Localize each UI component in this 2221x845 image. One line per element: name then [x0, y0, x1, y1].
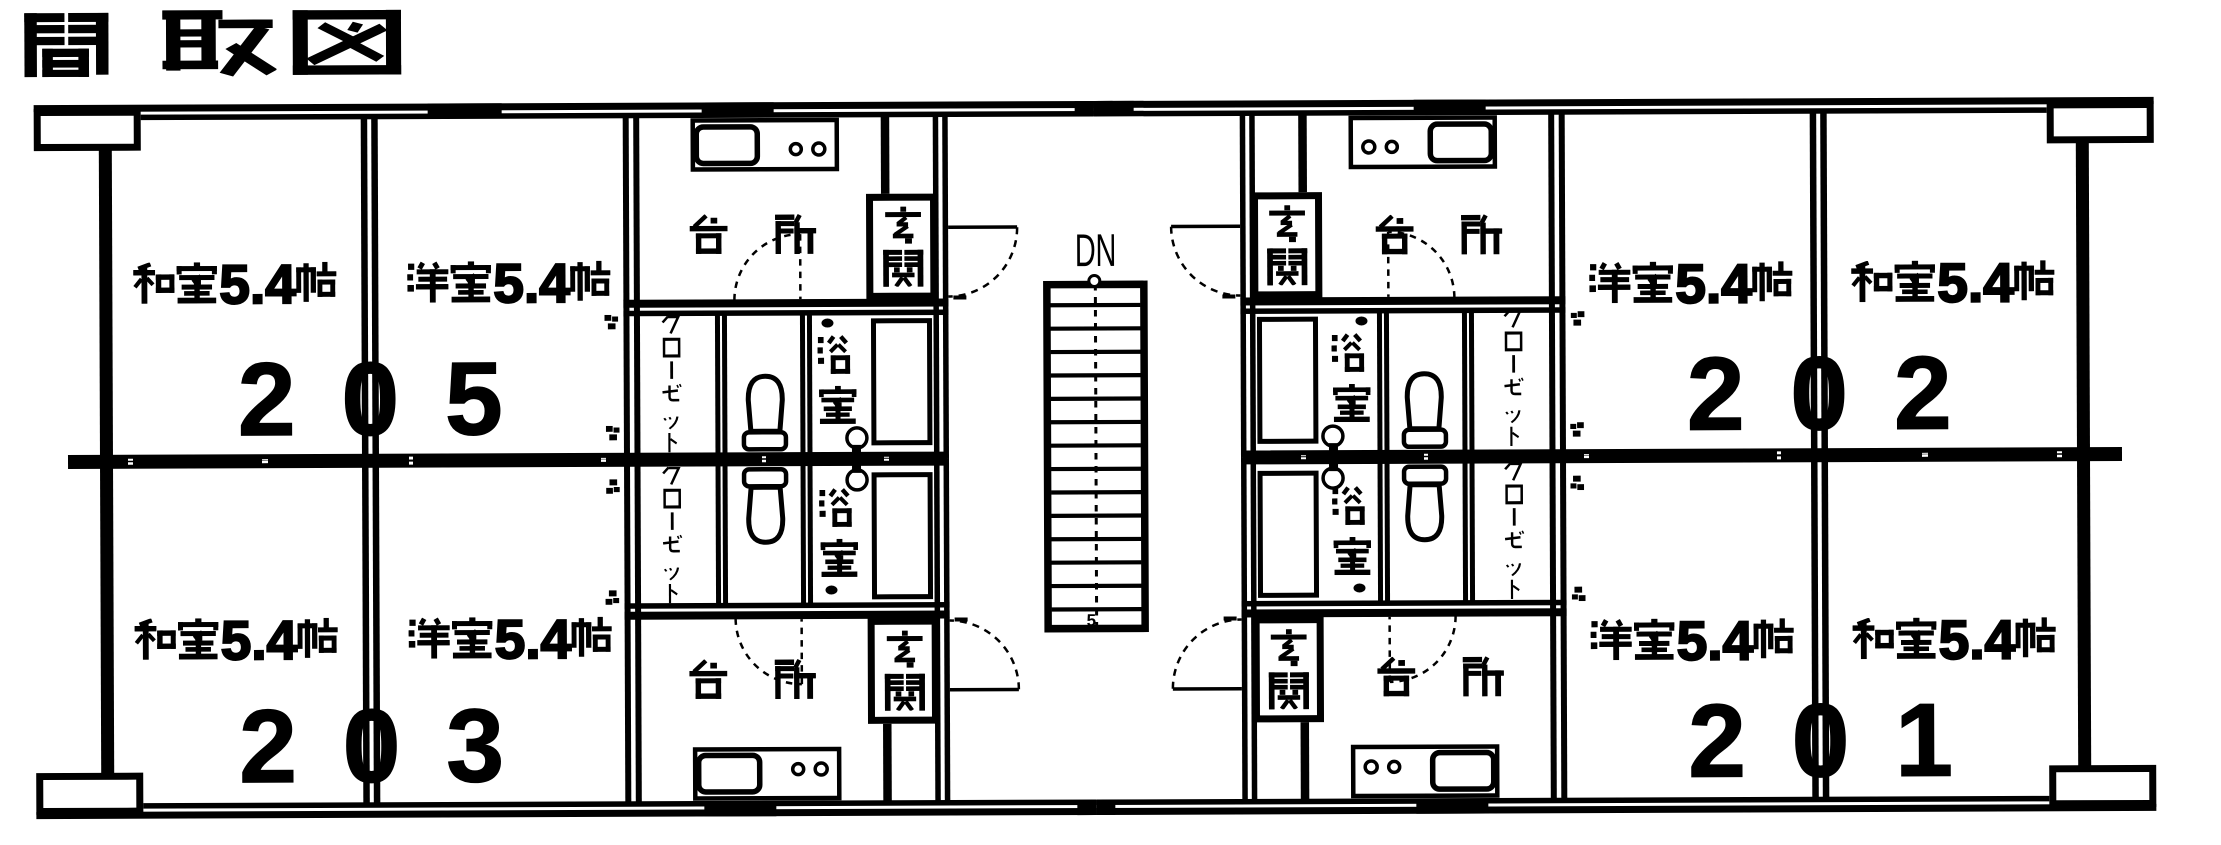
svg-text:DN: DN [1075, 225, 1117, 277]
svg-text:201: 201 [1688, 683, 1999, 800]
svg-text:202: 202 [1687, 336, 1998, 453]
svg-text:205: 205 [238, 341, 549, 458]
svg-text:203: 203 [239, 688, 550, 805]
svg-text:5: 5 [1087, 611, 1097, 630]
